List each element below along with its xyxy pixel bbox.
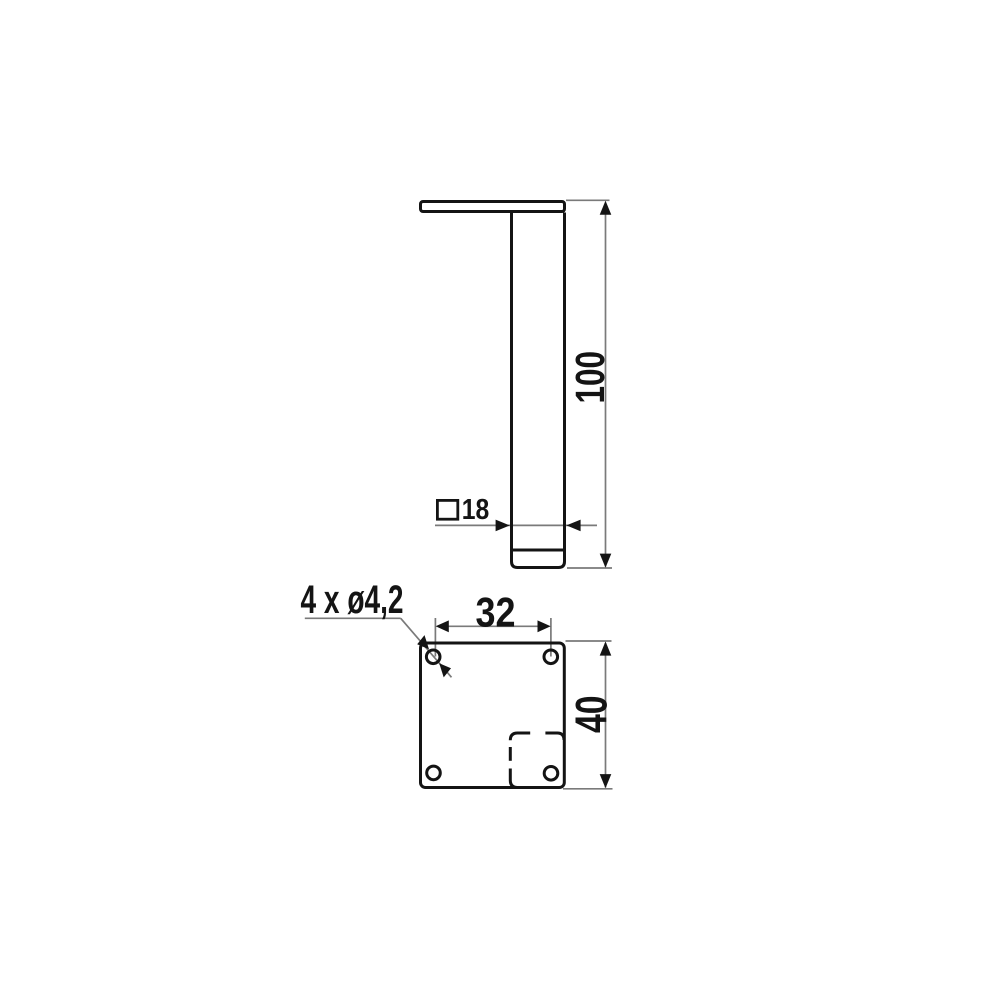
svg-text:18: 18 xyxy=(462,494,490,526)
svg-text:40: 40 xyxy=(568,696,617,734)
svg-text:100: 100 xyxy=(567,351,613,404)
svg-text:4 x ø4,2: 4 x ø4,2 xyxy=(301,578,404,622)
svg-text:32: 32 xyxy=(476,588,516,635)
